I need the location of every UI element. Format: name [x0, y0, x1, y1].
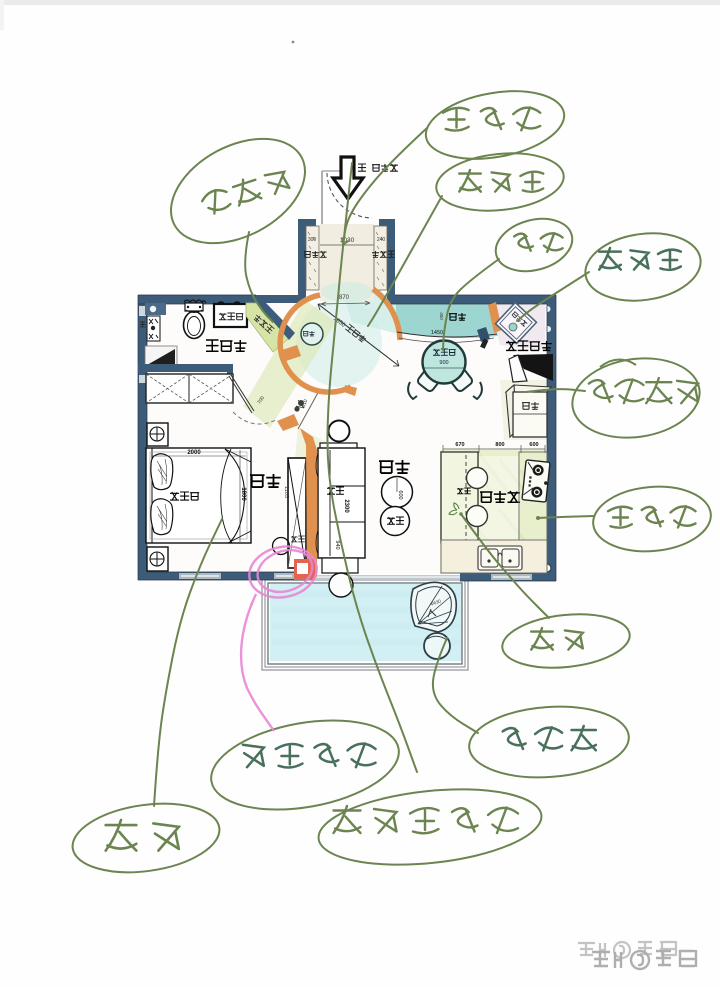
svg-text:940: 940 — [334, 540, 340, 549]
svg-text:670: 670 — [455, 442, 464, 448]
svg-text:1450: 1450 — [431, 330, 443, 336]
svg-text:1800: 1800 — [240, 487, 246, 501]
svg-text:800: 800 — [495, 442, 504, 448]
svg-text:1105: 1105 — [283, 486, 289, 498]
svg-text:900: 900 — [439, 360, 448, 366]
svg-text:300: 300 — [308, 237, 317, 243]
svg-text:240: 240 — [377, 237, 386, 243]
svg-text:2300: 2300 — [343, 499, 349, 513]
svg-text:870: 870 — [339, 295, 350, 301]
svg-text:600: 600 — [529, 442, 538, 448]
svg-text:600: 600 — [397, 490, 403, 499]
svg-text:2000: 2000 — [187, 450, 201, 456]
svg-text:450: 450 — [439, 312, 444, 320]
